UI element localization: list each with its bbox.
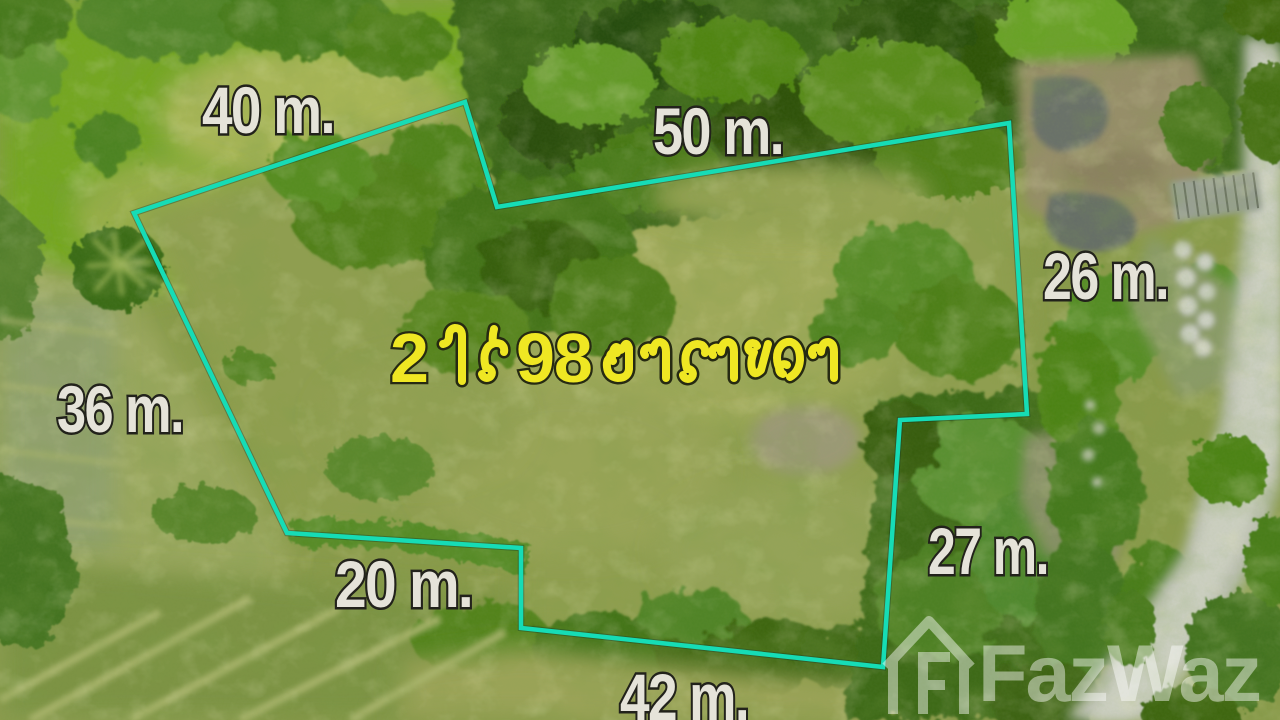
svg-text:50 m.: 50 m. (653, 94, 783, 168)
svg-text:42 m.: 42 m. (620, 660, 748, 720)
svg-text:2: 2 (390, 319, 429, 397)
svg-text:27 m.: 27 m. (928, 514, 1048, 588)
svg-text:FazWaz: FazWaz (978, 629, 1260, 719)
svg-text:20 m.: 20 m. (335, 547, 472, 621)
svg-text:26 m.: 26 m. (1043, 239, 1168, 313)
svg-text:98: 98 (516, 319, 592, 397)
svg-text:40 m.: 40 m. (202, 73, 334, 147)
svg-text:36 m.: 36 m. (57, 372, 183, 446)
